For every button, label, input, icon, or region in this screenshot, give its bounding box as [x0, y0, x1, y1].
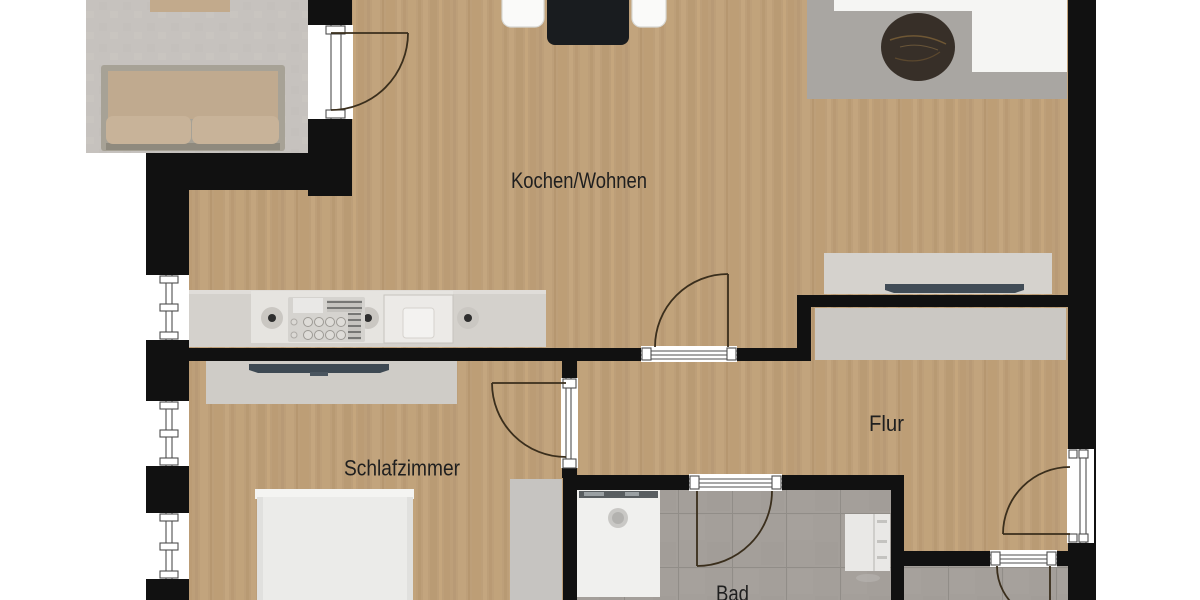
- svg-text:Kochen/Wohnen: Kochen/Wohnen: [511, 168, 647, 193]
- svg-text:Flur: Flur: [869, 411, 904, 436]
- svg-text:Schlafzimmer: Schlafzimmer: [344, 456, 460, 481]
- svg-text:Bad: Bad: [716, 581, 749, 600]
